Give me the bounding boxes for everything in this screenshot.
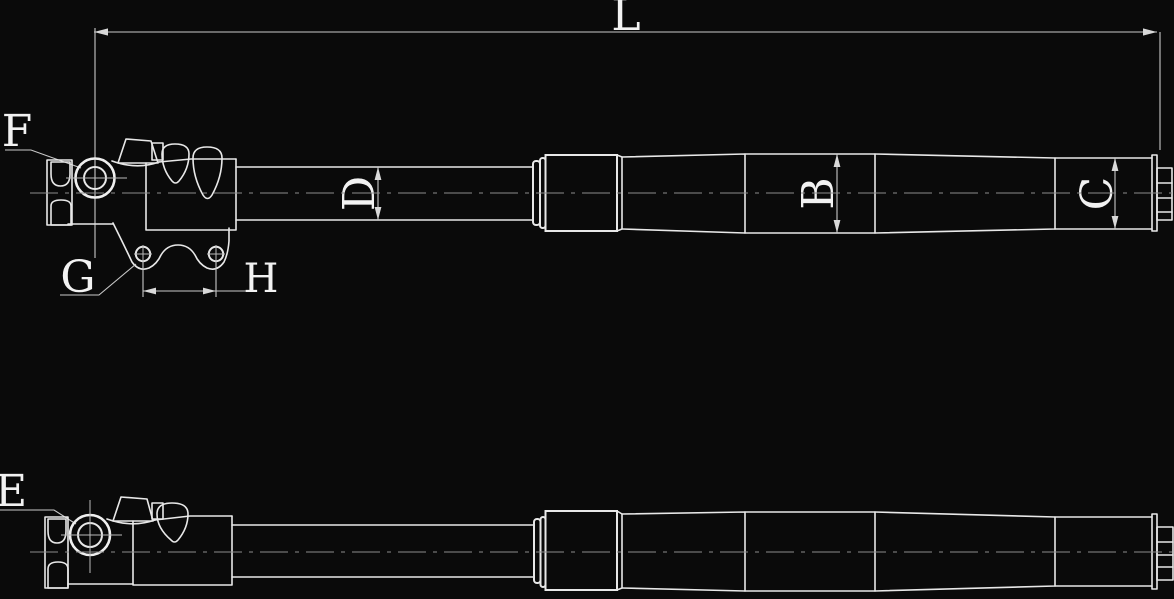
mid-section	[745, 512, 875, 591]
stub-threads	[1157, 183, 1172, 212]
callout-G: G	[60, 252, 136, 303]
lower-casting-bottom	[107, 497, 232, 585]
outer-tube-cap	[546, 511, 618, 590]
bottom-view: E	[0, 466, 1173, 591]
arrowhead-right	[1143, 28, 1157, 35]
arrowhead-down	[834, 220, 841, 233]
casting-lug-2	[193, 147, 222, 199]
clamp-lug-lower	[48, 562, 68, 588]
clamp-lug-upper	[51, 162, 70, 186]
arrowhead-left	[94, 28, 108, 35]
dim-label-L: L	[611, 0, 640, 41]
arrowhead-right	[203, 288, 216, 295]
callout-label-E: E	[0, 466, 27, 517]
callout-F: F	[2, 106, 81, 168]
seal-and-cap-bottom	[534, 511, 622, 590]
callout-E: E	[0, 466, 76, 524]
casting-top-edge	[155, 516, 232, 520]
casting-body-outline	[146, 159, 236, 230]
casting-lug	[157, 503, 188, 542]
callout-label-F: F	[2, 106, 33, 157]
dimension-hole-spacing: H	[143, 256, 278, 302]
arrowhead-down	[1112, 216, 1119, 229]
arrowhead-up	[834, 154, 841, 167]
steering-stop-tab	[113, 497, 153, 521]
arrowhead-left	[143, 288, 156, 295]
casting-top-edge	[159, 159, 236, 162]
dim-label-H: H	[244, 256, 279, 302]
casting-lug-1	[162, 144, 189, 183]
top-view: L F	[2, 0, 1172, 303]
technical-drawing-canvas: L F	[0, 0, 1174, 599]
casting-body-outline	[133, 516, 232, 585]
axle-hole	[66, 159, 127, 198]
inner-tube-bottom	[232, 525, 534, 577]
stub-threads	[1157, 542, 1173, 567]
lower-casting	[112, 139, 236, 230]
axle-hole-bottom	[61, 500, 122, 573]
clamp-lug-upper	[48, 519, 66, 543]
arrowhead-up	[1112, 158, 1119, 171]
threaded-stub	[1157, 527, 1173, 580]
clamp-lug-lower	[51, 200, 71, 225]
